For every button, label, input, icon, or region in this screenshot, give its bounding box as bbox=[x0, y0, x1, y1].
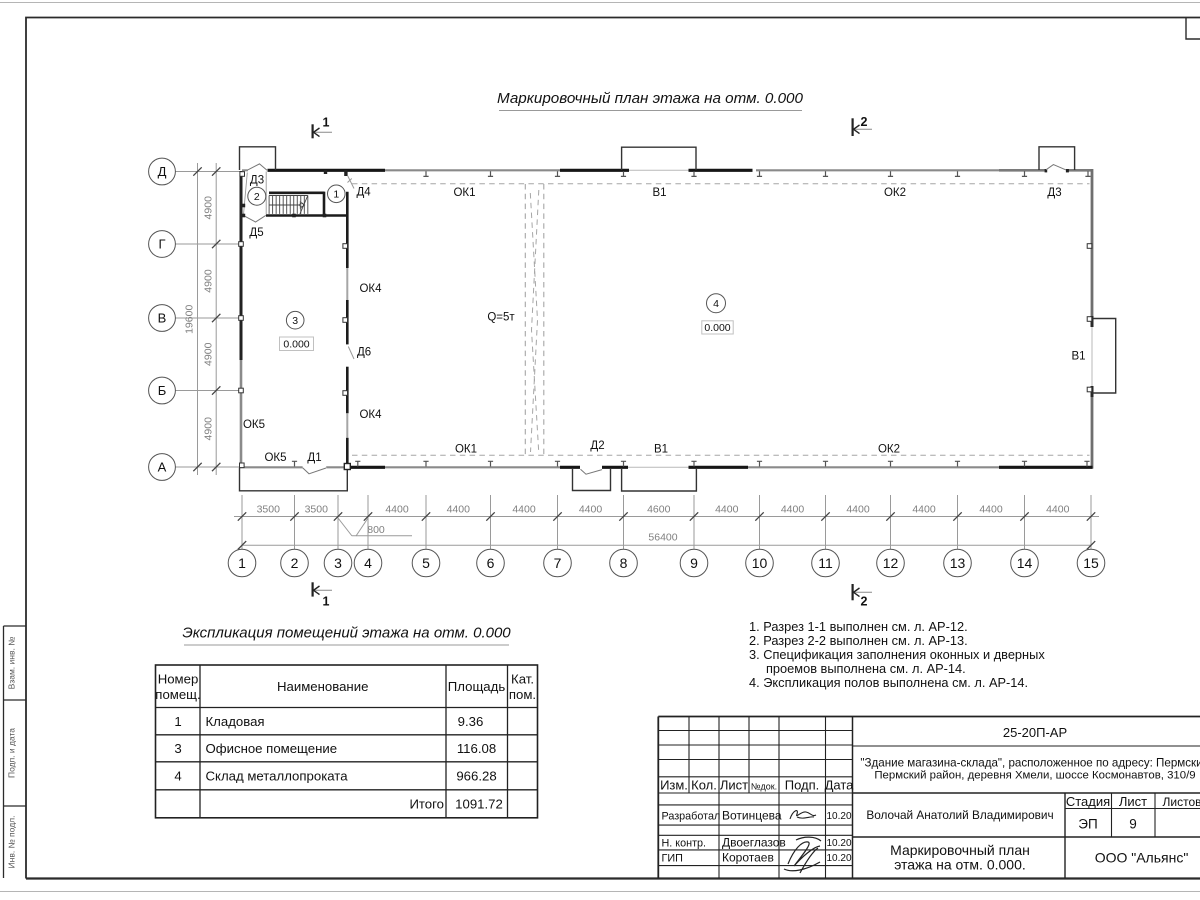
svg-text:3: 3 bbox=[334, 555, 342, 571]
svg-text:Итого: Итого bbox=[409, 797, 444, 812]
svg-text:8: 8 bbox=[620, 555, 628, 571]
svg-text:10.20: 10.20 bbox=[826, 838, 851, 849]
svg-text:Кат.: Кат. bbox=[511, 671, 534, 686]
svg-text:4400: 4400 bbox=[846, 504, 870, 516]
svg-text:3: 3 bbox=[292, 315, 298, 327]
svg-text:Пермский район, деревня Хмели,: Пермский район, деревня Хмели, шоссе Кос… bbox=[874, 770, 1195, 782]
svg-text:3500: 3500 bbox=[305, 504, 329, 516]
svg-text:4400: 4400 bbox=[979, 504, 1003, 516]
svg-text:Б: Б bbox=[158, 383, 167, 398]
svg-text:В: В bbox=[158, 311, 167, 326]
svg-text:Подп.: Подп. bbox=[785, 778, 820, 793]
svg-text:ООО "Альянс": ООО "Альянс" bbox=[1095, 850, 1189, 866]
svg-text:2. Разрез 2-2 выполнен см. л.: 2. Разрез 2-2 выполнен см. л. АР-13. bbox=[749, 633, 968, 648]
svg-text:1: 1 bbox=[323, 595, 330, 609]
svg-text:800: 800 bbox=[367, 524, 385, 536]
svg-text:6: 6 bbox=[487, 555, 495, 571]
svg-text:25-20П-АР: 25-20П-АР bbox=[1003, 725, 1067, 740]
svg-text:3. Спецификация заполнения око: 3. Спецификация заполнения оконных и две… bbox=[749, 647, 1045, 662]
svg-text:1: 1 bbox=[174, 714, 181, 729]
svg-text:4: 4 bbox=[713, 298, 719, 310]
svg-text:Д3: Д3 bbox=[250, 175, 264, 187]
svg-text:Вотинцева: Вотинцева bbox=[722, 809, 782, 823]
svg-text:4400: 4400 bbox=[715, 504, 739, 516]
svg-text:Склад металлопроката: Склад металлопроката bbox=[206, 769, 349, 784]
svg-text:В1: В1 bbox=[1071, 351, 1085, 363]
svg-text:4600: 4600 bbox=[647, 504, 671, 516]
svg-text:Маркировочный план этажа на от: Маркировочный план этажа на отм. 0.000 bbox=[497, 90, 803, 107]
svg-text:2: 2 bbox=[291, 555, 299, 571]
svg-text:3: 3 bbox=[174, 741, 181, 756]
svg-text:В1: В1 bbox=[654, 444, 668, 456]
svg-text:9.36: 9.36 bbox=[458, 714, 484, 729]
svg-text:1. Разрез 1-1 выполнен см. л.: 1. Разрез 1-1 выполнен см. л. АР-12. bbox=[749, 619, 968, 634]
svg-text:Д3: Д3 bbox=[1047, 187, 1061, 199]
svg-text:0.000: 0.000 bbox=[704, 322, 730, 334]
svg-text:4400: 4400 bbox=[447, 504, 471, 516]
svg-text:Д: Д bbox=[158, 164, 167, 179]
svg-text:3500: 3500 bbox=[257, 504, 281, 516]
svg-text:Инв. № подл.: Инв. № подл. bbox=[7, 816, 17, 869]
svg-text:Изм.: Изм. bbox=[660, 778, 688, 793]
svg-text:помещ.: помещ. bbox=[155, 687, 200, 702]
svg-text:4900: 4900 bbox=[203, 417, 215, 441]
svg-text:Д4: Д4 bbox=[357, 187, 372, 199]
svg-text:19600: 19600 bbox=[184, 305, 196, 334]
svg-text:А: А bbox=[158, 460, 167, 475]
svg-text:13: 13 bbox=[950, 555, 966, 571]
svg-text:Листов: Листов bbox=[1163, 795, 1200, 809]
svg-text:1: 1 bbox=[333, 189, 339, 201]
svg-text:4400: 4400 bbox=[512, 504, 536, 516]
svg-text:Разработал: Разработал bbox=[662, 811, 721, 823]
svg-text:4400: 4400 bbox=[912, 504, 936, 516]
svg-text:14: 14 bbox=[1017, 555, 1033, 571]
svg-text:Экспликация помещений этажа на: Экспликация помещений этажа на отм. 0.00… bbox=[182, 625, 511, 642]
svg-text:Д6: Д6 bbox=[357, 347, 371, 359]
svg-text:4. Экспликация полов выполнена: 4. Экспликация полов выполнена см. л. АР… bbox=[749, 675, 1028, 690]
svg-text:2: 2 bbox=[861, 115, 868, 129]
svg-text:ОК2: ОК2 bbox=[884, 187, 906, 199]
svg-text:Коротаев: Коротаев bbox=[722, 851, 774, 865]
svg-text:Д1: Д1 bbox=[307, 452, 321, 464]
svg-text:Взам. инв. №: Взам. инв. № bbox=[7, 637, 17, 690]
svg-text:этажа на отм. 0.000.: этажа на отм. 0.000. bbox=[894, 857, 1026, 873]
svg-text:Двоеглазов: Двоеглазов bbox=[722, 835, 786, 849]
svg-text:проемов выполнена см. л. АР-14: проемов выполнена см. л. АР-14. bbox=[766, 661, 966, 676]
svg-text:4900: 4900 bbox=[203, 196, 215, 220]
svg-text:7: 7 bbox=[554, 555, 562, 571]
svg-text:4: 4 bbox=[174, 769, 181, 784]
svg-text:пом.: пом. bbox=[509, 687, 536, 702]
svg-text:56400: 56400 bbox=[648, 532, 677, 544]
svg-text:Г: Г bbox=[158, 237, 165, 252]
svg-text:ОК5: ОК5 bbox=[264, 452, 286, 464]
svg-text:Кол.: Кол. bbox=[691, 778, 717, 793]
svg-text:Лист: Лист bbox=[1119, 794, 1147, 809]
svg-text:4400: 4400 bbox=[579, 504, 603, 516]
svg-text:"Здание магазина-склада", расп: "Здание магазина-склада", расположенное … bbox=[860, 757, 1200, 770]
svg-text:1: 1 bbox=[238, 555, 246, 571]
svg-text:9: 9 bbox=[690, 555, 698, 571]
svg-text:10.20: 10.20 bbox=[826, 853, 851, 864]
svg-text:Дата: Дата bbox=[825, 778, 855, 793]
svg-text:Офисное помещение: Офисное помещение bbox=[206, 741, 338, 756]
svg-text:ОК2: ОК2 bbox=[878, 444, 900, 456]
svg-text:Подп. и дата: Подп. и дата bbox=[7, 728, 17, 778]
svg-text:ЭП: ЭП bbox=[1078, 817, 1097, 832]
svg-text:5: 5 bbox=[422, 555, 430, 571]
svg-text:15: 15 bbox=[1083, 555, 1099, 571]
svg-text:4900: 4900 bbox=[203, 269, 215, 293]
svg-text:966.28: 966.28 bbox=[456, 769, 496, 784]
svg-text:Площадь: Площадь bbox=[448, 679, 506, 694]
svg-text:2: 2 bbox=[254, 191, 260, 203]
svg-text:9: 9 bbox=[1129, 817, 1137, 832]
svg-text:4: 4 bbox=[364, 555, 372, 571]
svg-text:116.08: 116.08 bbox=[457, 741, 496, 756]
svg-text:0.000: 0.000 bbox=[283, 338, 309, 350]
svg-text:Лист: Лист bbox=[720, 778, 748, 793]
svg-text:11: 11 bbox=[818, 555, 833, 571]
svg-text:ОК4: ОК4 bbox=[359, 409, 382, 421]
svg-text:Номер: Номер bbox=[158, 671, 199, 686]
svg-text:Стадия: Стадия bbox=[1066, 794, 1110, 809]
svg-text:Н. контр.: Н. контр. bbox=[662, 837, 707, 849]
svg-text:Q=5т: Q=5т bbox=[487, 312, 515, 324]
svg-text:10.20: 10.20 bbox=[826, 811, 851, 822]
svg-text:Кладовая: Кладовая bbox=[206, 714, 265, 729]
svg-text:12: 12 bbox=[883, 555, 899, 571]
svg-text:2: 2 bbox=[861, 595, 868, 609]
svg-text:ОК5: ОК5 bbox=[243, 419, 265, 431]
svg-text:В1: В1 bbox=[652, 187, 666, 199]
svg-text:ОК4: ОК4 bbox=[359, 283, 382, 295]
svg-text:10: 10 bbox=[752, 555, 768, 571]
svg-text:Д2: Д2 bbox=[590, 440, 604, 452]
svg-text:4400: 4400 bbox=[1046, 504, 1070, 516]
svg-text:№док.: №док. bbox=[751, 782, 777, 792]
svg-text:ГИП: ГИП bbox=[662, 853, 683, 865]
svg-text:1: 1 bbox=[323, 116, 330, 130]
svg-text:Наименование: Наименование bbox=[277, 679, 368, 694]
svg-text:4400: 4400 bbox=[385, 504, 409, 516]
svg-text:Волочай Анатолий Владимирович: Волочай Анатолий Владимирович bbox=[866, 808, 1053, 822]
svg-text:ОК1: ОК1 bbox=[455, 444, 477, 456]
svg-text:1091.72: 1091.72 bbox=[455, 797, 503, 812]
svg-text:4900: 4900 bbox=[203, 342, 215, 366]
svg-text:Д5: Д5 bbox=[249, 227, 263, 239]
svg-text:ОК1: ОК1 bbox=[453, 187, 475, 199]
svg-text:4400: 4400 bbox=[781, 504, 805, 516]
